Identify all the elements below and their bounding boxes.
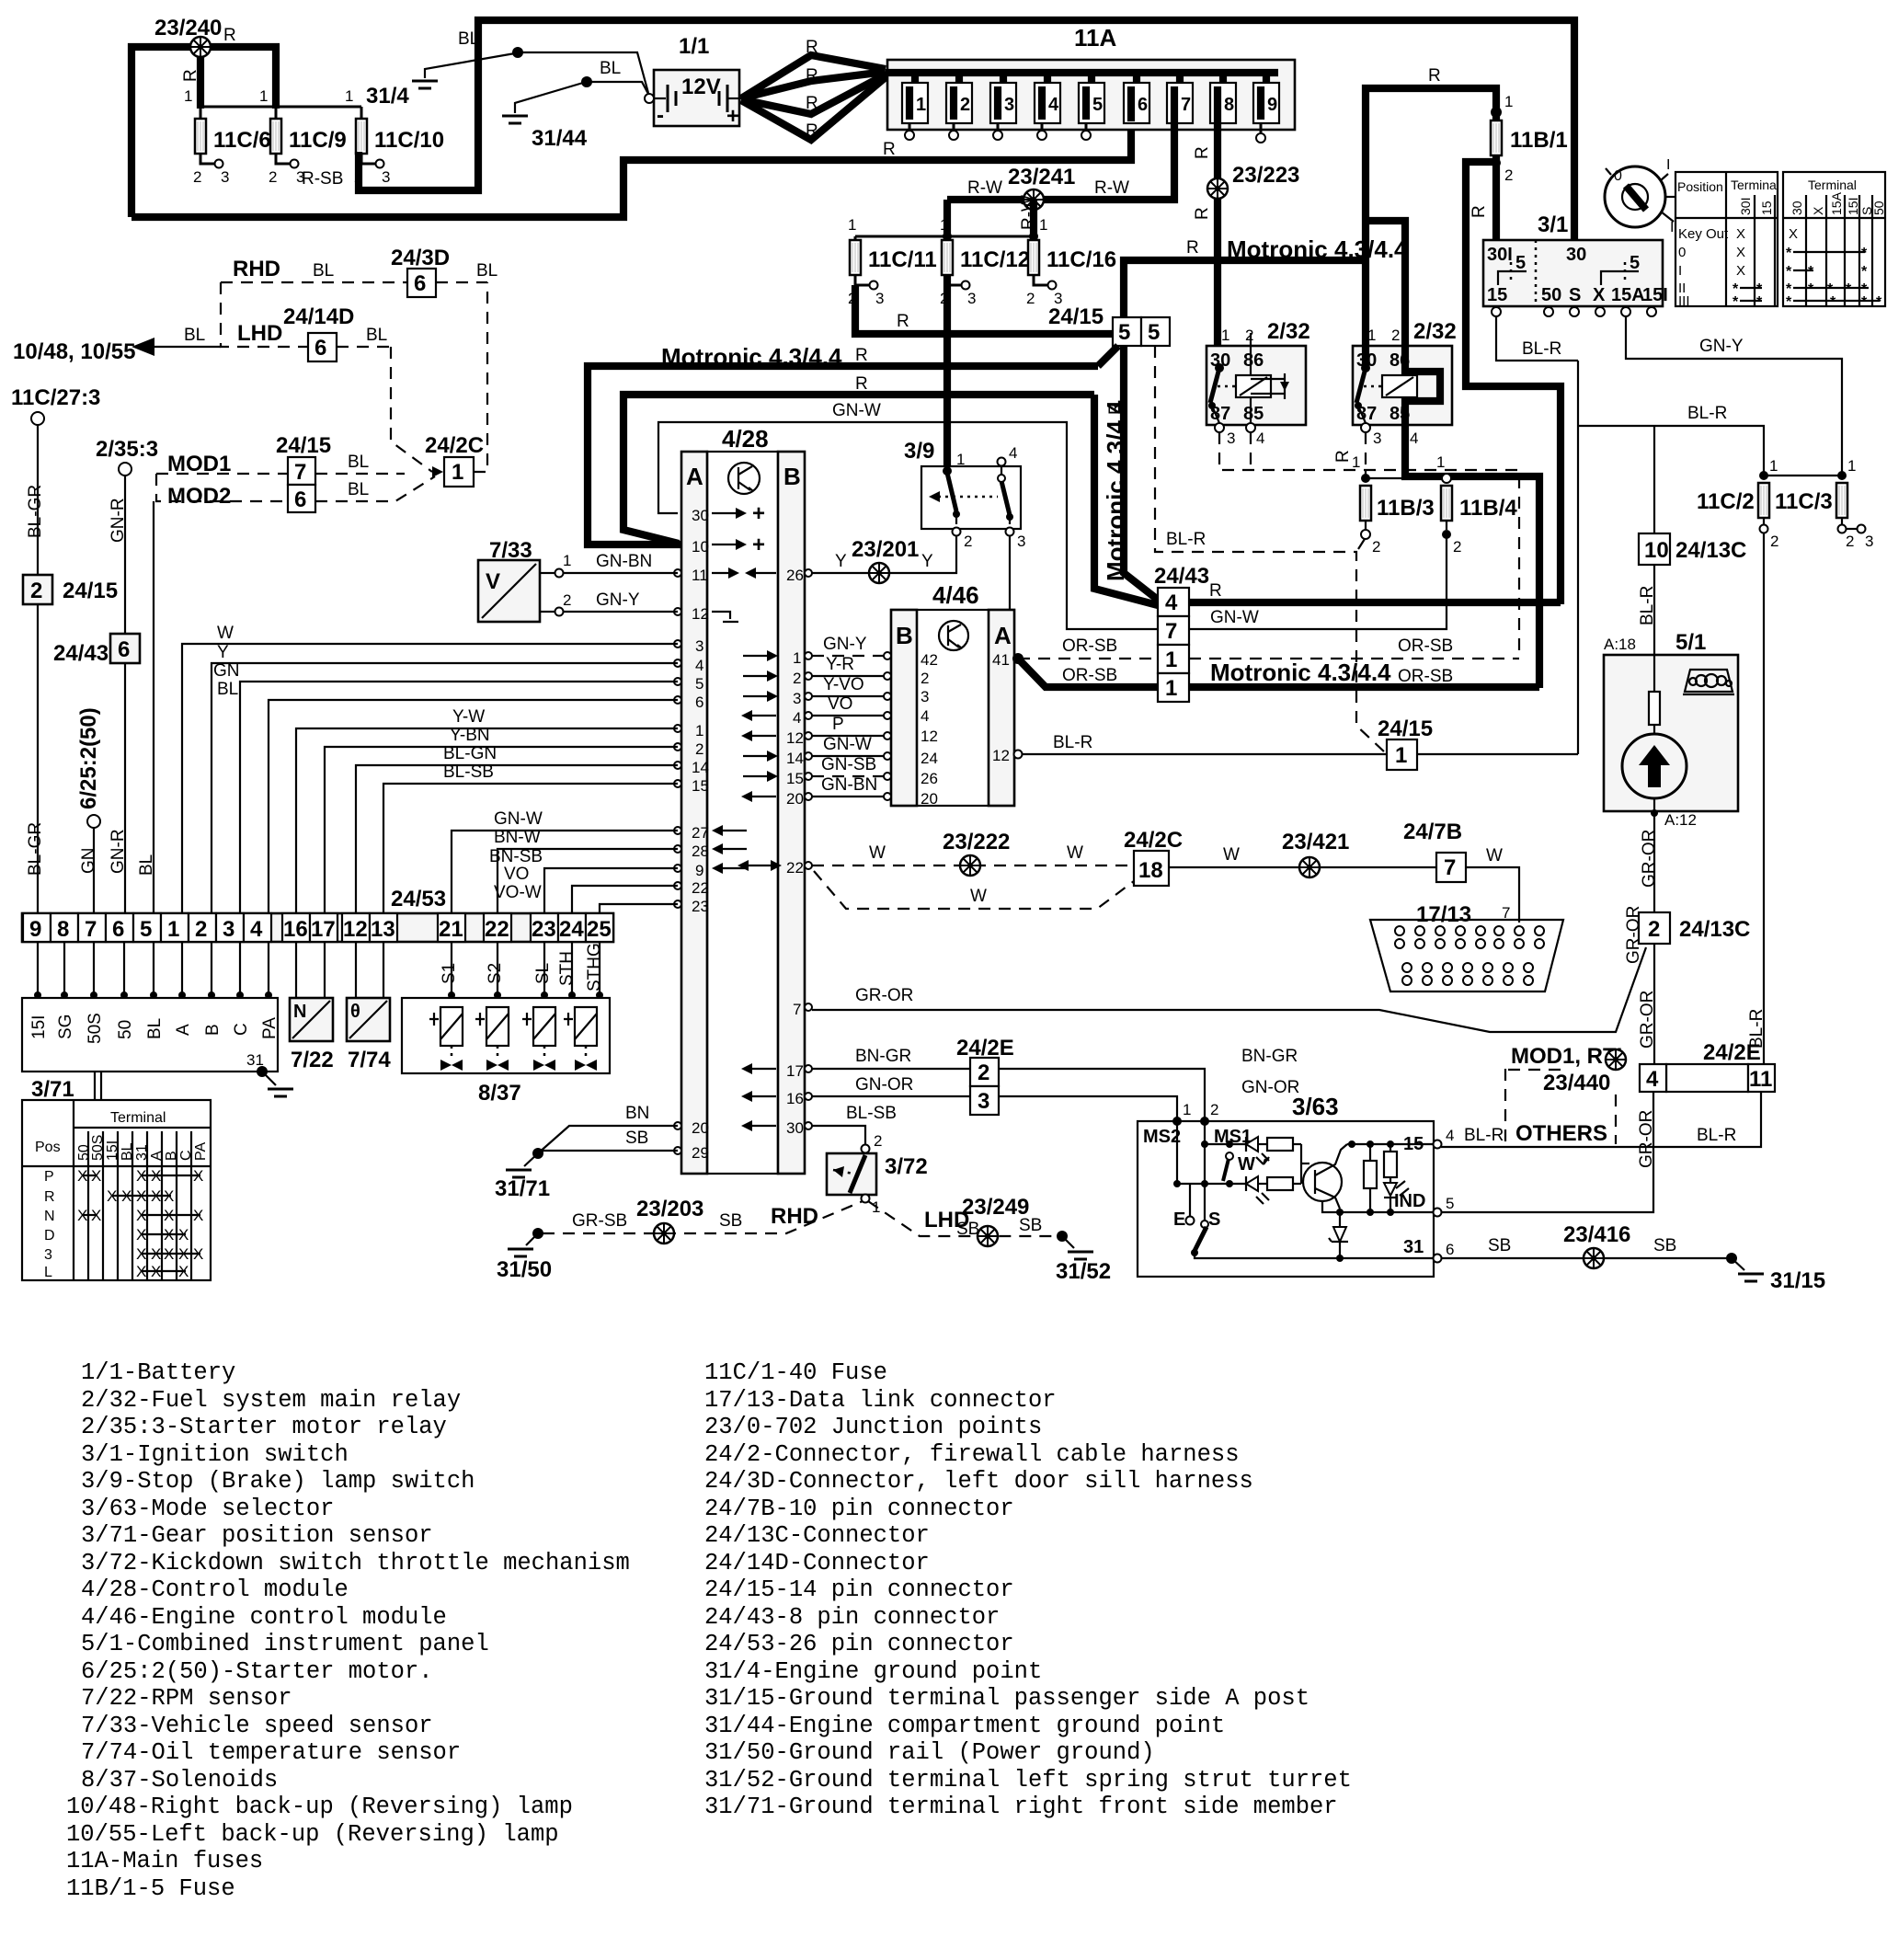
svg-text:15: 15 — [1403, 1134, 1424, 1154]
svg-text:8/37-Solenoids: 8/37-Solenoids — [81, 1767, 278, 1794]
svg-text:Y-BN: Y-BN — [450, 726, 490, 745]
svg-text:5: 5 — [1118, 320, 1130, 345]
svg-text:1: 1 — [848, 216, 856, 234]
svg-text:5: 5 — [1515, 253, 1526, 273]
svg-text:3: 3 — [921, 688, 929, 705]
svg-text:SB: SB — [625, 1129, 648, 1148]
svg-text:30: 30 — [1566, 245, 1586, 265]
svg-text:6: 6 — [1138, 95, 1148, 115]
svg-text:24/43-8 pin connector: 24/43-8 pin connector — [704, 1604, 1000, 1631]
svg-text:PA: PA — [193, 1142, 209, 1161]
svg-text:25: 25 — [587, 917, 612, 942]
svg-text:A: A — [174, 1024, 193, 1036]
svg-text:1: 1 — [1504, 93, 1513, 110]
svg-text:Y: Y — [921, 552, 933, 571]
svg-text:BN-GR: BN-GR — [855, 1047, 911, 1066]
svg-text:1: 1 — [1395, 743, 1407, 768]
svg-text:X: X — [178, 1226, 189, 1244]
svg-text:3: 3 — [1865, 533, 1873, 550]
svg-text:24/13C-Connector: 24/13C-Connector — [704, 1522, 930, 1549]
svg-text:4: 4 — [1256, 430, 1264, 447]
svg-text:3/63-Mode selector: 3/63-Mode selector — [81, 1496, 334, 1522]
svg-text:Y: Y — [835, 552, 847, 571]
svg-text:15I: 15I — [1642, 285, 1668, 305]
svg-text:4/28: 4/28 — [722, 425, 769, 453]
svg-text:3: 3 — [44, 1247, 52, 1263]
svg-text:31/44: 31/44 — [532, 126, 588, 151]
svg-text:GN-Y: GN-Y — [823, 635, 867, 654]
svg-text:5: 5 — [1630, 253, 1640, 273]
svg-text:7/22: 7/22 — [291, 1048, 334, 1072]
svg-text:PA: PA — [260, 1017, 280, 1039]
svg-text:1: 1 — [1039, 216, 1047, 234]
svg-text:11B/1: 11B/1 — [1510, 128, 1568, 153]
svg-text:BL: BL — [348, 480, 369, 499]
svg-text:2/35:3-Starter motor relay: 2/35:3-Starter motor relay — [81, 1414, 447, 1440]
svg-text:17/13-Data link connector: 17/13-Data link connector — [704, 1387, 1057, 1414]
svg-text:11B/1-5 Fuse: 11B/1-5 Fuse — [66, 1875, 235, 1902]
svg-text:0: 0 — [1678, 245, 1686, 260]
svg-text:III: III — [1678, 293, 1690, 309]
svg-text:3/72: 3/72 — [885, 1154, 928, 1179]
svg-text:W: W — [217, 624, 234, 643]
svg-text:VO: VO — [828, 694, 852, 714]
svg-text:14: 14 — [786, 750, 804, 767]
svg-text:23/440: 23/440 — [1543, 1071, 1610, 1095]
svg-text:R: R — [1333, 450, 1353, 463]
svg-text:6/25:2(50)-Starter motor.: 6/25:2(50)-Starter motor. — [81, 1658, 433, 1685]
svg-text:1: 1 — [793, 649, 801, 667]
svg-text:3/9: 3/9 — [904, 439, 934, 464]
svg-text:B: B — [896, 622, 913, 649]
svg-text:1: 1 — [452, 460, 463, 485]
svg-text:24/43: 24/43 — [53, 641, 109, 666]
svg-text:7: 7 — [1181, 95, 1191, 115]
svg-text:7: 7 — [85, 917, 97, 942]
svg-text:1/1: 1/1 — [679, 34, 709, 59]
svg-text:24/15: 24/15 — [1378, 716, 1433, 741]
svg-text:16: 16 — [786, 1090, 804, 1107]
svg-text:S: S — [1208, 1209, 1220, 1230]
svg-text:3: 3 — [223, 917, 234, 942]
svg-text:4: 4 — [1410, 430, 1418, 447]
svg-text:GR-OR: GR-OR — [1640, 830, 1659, 888]
svg-text:7/22-RPM sensor: 7/22-RPM sensor — [81, 1685, 292, 1712]
svg-text:SB: SB — [1653, 1236, 1676, 1255]
svg-text:X: X — [1736, 226, 1745, 242]
svg-text:24/7B: 24/7B — [1403, 820, 1462, 844]
svg-text:*: * — [1861, 264, 1868, 280]
svg-text:OR-SB: OR-SB — [1398, 667, 1453, 686]
svg-text:4/46: 4/46 — [932, 581, 979, 609]
svg-text:2: 2 — [793, 670, 801, 687]
svg-text:15: 15 — [786, 770, 804, 787]
svg-text:2: 2 — [1504, 166, 1513, 184]
svg-text:12: 12 — [921, 728, 938, 745]
svg-text:3/63: 3/63 — [1292, 1093, 1339, 1120]
svg-text:*: * — [1733, 294, 1739, 310]
svg-text:*: * — [1786, 264, 1792, 280]
svg-text:D: D — [44, 1228, 55, 1244]
svg-text:Terminal: Terminal — [1731, 178, 1779, 192]
svg-text:20: 20 — [921, 790, 938, 808]
svg-text:24/14D-Connector: 24/14D-Connector — [704, 1550, 930, 1576]
svg-text:7/74: 7/74 — [348, 1048, 391, 1072]
svg-text:W: W — [970, 887, 987, 906]
svg-text:2: 2 — [921, 670, 929, 687]
svg-text:Motronic 4.3/4.4: Motronic 4.3/4.4 — [1102, 400, 1129, 581]
svg-text:1: 1 — [1183, 1101, 1191, 1118]
svg-text:3: 3 — [1004, 95, 1014, 115]
svg-text:GR-OR: GR-OR — [1624, 906, 1643, 964]
svg-text:Motronic 4.3/4.4: Motronic 4.3/4.4 — [1210, 659, 1391, 686]
svg-text:R: R — [806, 66, 818, 86]
svg-text:9: 9 — [29, 917, 41, 942]
svg-text:11C/2: 11C/2 — [1697, 489, 1755, 514]
svg-text:4: 4 — [793, 709, 801, 727]
svg-text:*: * — [1830, 294, 1836, 310]
svg-text:*: * — [1876, 294, 1882, 310]
svg-text:1: 1 — [1769, 457, 1778, 475]
svg-text:1/1-Battery: 1/1-Battery — [81, 1359, 235, 1386]
svg-text:2: 2 — [978, 1060, 989, 1085]
svg-text:2: 2 — [1372, 538, 1380, 556]
svg-text:5: 5 — [140, 917, 152, 942]
svg-text:+: + — [726, 104, 739, 129]
svg-text:17/13: 17/13 — [1416, 902, 1471, 927]
svg-text:5/1: 5/1 — [1675, 630, 1706, 655]
svg-text:R: R — [1470, 205, 1489, 218]
svg-text:GN-OR: GN-OR — [1241, 1078, 1299, 1097]
svg-text:41: 41 — [992, 651, 1010, 669]
svg-text:E: E — [1173, 1209, 1185, 1230]
svg-text:23/240: 23/240 — [154, 16, 222, 40]
svg-text:GN-BN: GN-BN — [596, 552, 652, 571]
svg-text:23/416: 23/416 — [1563, 1222, 1630, 1247]
svg-text:11C/10: 11C/10 — [374, 128, 444, 153]
svg-text:STHG: STHG — [585, 943, 604, 991]
svg-text:3/71: 3/71 — [31, 1077, 74, 1102]
svg-text:X: X — [1736, 245, 1745, 260]
svg-text:50: 50 — [116, 1020, 135, 1039]
svg-text:R: R — [855, 374, 868, 394]
svg-text:7/74-Oil temperature sensor: 7/74-Oil temperature sensor — [81, 1739, 461, 1766]
svg-text:3: 3 — [1017, 533, 1025, 550]
svg-text:C: C — [232, 1023, 251, 1036]
svg-text:BL-R: BL-R — [1053, 733, 1092, 752]
svg-text:R-W: R-W — [967, 178, 1002, 198]
svg-text:3: 3 — [1373, 430, 1381, 447]
svg-text:10/55-Left back-up (Reversing): 10/55-Left back-up (Reversing) lamp — [66, 1821, 559, 1848]
svg-text:BN: BN — [625, 1104, 649, 1123]
svg-text:5/1-Combined instrument panel: 5/1-Combined instrument panel — [81, 1631, 489, 1657]
svg-text:STH: STH — [557, 951, 577, 986]
svg-text:GN-Y: GN-Y — [1699, 337, 1744, 356]
svg-text:23/201: 23/201 — [852, 537, 919, 562]
svg-text:11C/11: 11C/11 — [868, 247, 937, 272]
svg-text:R-W: R-W — [1094, 178, 1129, 198]
svg-text:3: 3 — [875, 290, 884, 307]
svg-text:X: X — [178, 1263, 189, 1280]
svg-text:X: X — [164, 1226, 174, 1244]
svg-text:R: R — [883, 140, 896, 159]
svg-text:2: 2 — [874, 1132, 882, 1150]
svg-text:3: 3 — [1227, 430, 1235, 447]
svg-text:15A: 15A — [1611, 285, 1645, 305]
svg-text:10: 10 — [692, 538, 709, 556]
svg-text:29: 29 — [692, 1144, 709, 1162]
svg-text:1: 1 — [345, 87, 353, 105]
svg-text:SB: SB — [1019, 1216, 1042, 1235]
svg-text:2: 2 — [269, 168, 277, 186]
svg-text:24/13C: 24/13C — [1679, 917, 1750, 942]
svg-text:R: R — [44, 1189, 55, 1205]
svg-text:22: 22 — [692, 879, 709, 897]
svg-text:BL: BL — [137, 854, 156, 876]
svg-text:12: 12 — [786, 729, 804, 747]
svg-text:R: R — [806, 121, 818, 141]
svg-text:31/52: 31/52 — [1056, 1259, 1111, 1284]
svg-text:20: 20 — [786, 790, 804, 808]
svg-text:0: 0 — [1614, 168, 1622, 184]
svg-text:7: 7 — [1444, 855, 1456, 880]
svg-text:OR-SB: OR-SB — [1062, 666, 1117, 685]
svg-text:8/37: 8/37 — [478, 1081, 521, 1106]
svg-text:VO-W: VO-W — [494, 883, 542, 902]
svg-text:15: 15 — [692, 777, 709, 795]
svg-text:N: N — [44, 1209, 55, 1224]
svg-text:14: 14 — [692, 759, 709, 776]
svg-text:A: A — [994, 622, 1012, 649]
svg-text:X: X — [164, 1245, 174, 1263]
svg-text:2: 2 — [1026, 290, 1035, 307]
svg-text:*: * — [1861, 294, 1868, 310]
svg-text:Motronic 4.3/4.4: Motronic 4.3/4.4 — [1227, 235, 1408, 263]
svg-text:GN-Y: GN-Y — [596, 590, 640, 610]
svg-text:30I: 30I — [1487, 245, 1513, 265]
svg-text:V: V — [486, 569, 500, 594]
svg-text:3/9-Stop (Brake) lamp switch: 3/9-Stop (Brake) lamp switch — [81, 1468, 475, 1495]
svg-text:22: 22 — [786, 859, 804, 877]
svg-text:RHD: RHD — [233, 257, 280, 281]
svg-text:Y-W: Y-W — [452, 707, 485, 727]
svg-text:23/203: 23/203 — [636, 1197, 703, 1221]
svg-text:3: 3 — [978, 1089, 989, 1114]
svg-text:24/15: 24/15 — [1048, 304, 1104, 329]
svg-text:24/2E: 24/2E — [1703, 1040, 1761, 1065]
svg-text:GR-OR: GR-OR — [1638, 991, 1657, 1049]
svg-text:2/35:3: 2/35:3 — [96, 437, 158, 462]
svg-text:Pos: Pos — [35, 1140, 61, 1155]
svg-text:2: 2 — [195, 917, 207, 942]
svg-text:11C/6: 11C/6 — [213, 128, 271, 153]
svg-text:12: 12 — [692, 605, 709, 623]
svg-text:MS2: MS2 — [1143, 1127, 1181, 1147]
svg-text:BL-R: BL-R — [1166, 530, 1206, 549]
svg-text:3: 3 — [695, 637, 703, 655]
svg-text:15: 15 — [1759, 201, 1774, 215]
svg-text:W: W — [869, 843, 886, 863]
svg-text:11C/3: 11C/3 — [1775, 489, 1833, 514]
svg-text:4: 4 — [695, 657, 703, 674]
svg-text:2/32-Fuel system main relay: 2/32-Fuel system main relay — [81, 1387, 461, 1414]
svg-text:4: 4 — [250, 917, 263, 942]
svg-text:24: 24 — [559, 917, 584, 942]
svg-text:4: 4 — [1446, 1127, 1454, 1144]
svg-text:24/15: 24/15 — [276, 433, 331, 458]
svg-text:RHD: RHD — [771, 1204, 818, 1229]
svg-text:4: 4 — [1009, 444, 1017, 462]
svg-text:6: 6 — [112, 917, 124, 942]
svg-text:85: 85 — [1243, 404, 1264, 424]
svg-text:GN-W: GN-W — [823, 735, 872, 754]
svg-text:11: 11 — [692, 567, 708, 584]
svg-text:BL: BL — [217, 680, 238, 699]
svg-text:21: 21 — [439, 917, 463, 942]
svg-text:6: 6 — [294, 487, 306, 512]
svg-text:30: 30 — [786, 1119, 804, 1137]
svg-text:2: 2 — [563, 591, 571, 609]
svg-text:R: R — [181, 69, 200, 82]
svg-text:GR-SB: GR-SB — [572, 1211, 627, 1231]
svg-text:6: 6 — [118, 637, 130, 662]
svg-text:1: 1 — [259, 87, 268, 105]
svg-text:X: X — [151, 1263, 161, 1280]
svg-text:15I: 15I — [29, 1015, 49, 1039]
svg-text:1: 1 — [916, 95, 926, 115]
svg-text:31/71-Ground terminal right fr: 31/71-Ground terminal right front side m… — [704, 1794, 1338, 1820]
svg-text:17: 17 — [786, 1062, 804, 1080]
svg-text:Terminal: Terminal — [1808, 178, 1857, 192]
svg-text:X: X — [136, 1187, 146, 1205]
svg-text:23/421: 23/421 — [1282, 830, 1349, 854]
svg-text:24/2-Connector, firewall cable: 24/2-Connector, firewall cable harness — [704, 1441, 1240, 1468]
svg-text:VO: VO — [504, 865, 529, 884]
svg-text:R: R — [1209, 581, 1222, 601]
svg-text:GN-W: GN-W — [494, 809, 543, 829]
svg-text:*: * — [1861, 246, 1868, 261]
svg-text:31/15-Ground terminal passenge: 31/15-Ground terminal passenger side A p… — [704, 1685, 1309, 1712]
svg-text:BL-R: BL-R — [1464, 1126, 1504, 1145]
svg-text:BL: BL — [366, 326, 387, 345]
svg-text:GN: GN — [213, 661, 240, 681]
svg-text:24/53-26 pin connector: 24/53-26 pin connector — [704, 1631, 1014, 1657]
svg-text:BN-GR: BN-GR — [1241, 1047, 1298, 1066]
svg-text:4/46-Engine control module: 4/46-Engine control module — [81, 1604, 447, 1631]
svg-text:1: 1 — [1165, 676, 1177, 701]
svg-text:8: 8 — [1224, 95, 1234, 115]
svg-text:24/7B-10 pin connector: 24/7B-10 pin connector — [704, 1496, 1014, 1522]
svg-text:MOD2: MOD2 — [167, 484, 231, 509]
svg-text:24/14D: 24/14D — [283, 304, 354, 329]
svg-text:15I: 15I — [1846, 198, 1860, 215]
svg-text:1: 1 — [563, 552, 571, 569]
svg-text:*: * — [1846, 281, 1852, 297]
svg-text:SL: SL — [533, 963, 553, 984]
svg-text:86: 86 — [1243, 350, 1264, 371]
svg-text:X: X — [1593, 285, 1606, 305]
svg-text:16: 16 — [283, 917, 308, 942]
svg-text:W: W — [1223, 845, 1240, 865]
svg-text:31/44-Engine compartment groun: 31/44-Engine compartment ground point — [704, 1713, 1225, 1739]
svg-text:Y-R: Y-R — [826, 655, 854, 674]
svg-text:BL-R: BL-R — [1697, 1126, 1736, 1145]
svg-text:31/71: 31/71 — [495, 1176, 550, 1201]
svg-text:24/15-14 pin connector: 24/15-14 pin connector — [704, 1576, 1014, 1603]
svg-text:6: 6 — [695, 693, 703, 711]
svg-text:Terminal: Terminal — [110, 1110, 166, 1126]
svg-text:4/28-Control module: 4/28-Control module — [81, 1576, 349, 1603]
svg-text:23/0-702 Junction points: 23/0-702 Junction points — [704, 1414, 1042, 1440]
svg-text:26: 26 — [921, 770, 938, 787]
svg-text:10/48-Right back-up (Reversing: 10/48-Right back-up (Reversing) lamp — [66, 1794, 573, 1820]
svg-text:11: 11 — [1749, 1067, 1772, 1092]
svg-text:BL: BL — [313, 261, 334, 281]
svg-text:GN-SB: GN-SB — [821, 755, 876, 774]
svg-text:2: 2 — [30, 579, 42, 603]
svg-text:5: 5 — [695, 675, 703, 693]
svg-text:11B/4: 11B/4 — [1459, 496, 1517, 521]
svg-text:12: 12 — [343, 917, 368, 942]
svg-text:IND: IND — [1394, 1191, 1425, 1211]
svg-text:22: 22 — [485, 917, 509, 942]
svg-text:BL-R: BL-R — [1687, 404, 1727, 423]
svg-text:24/2C: 24/2C — [1124, 828, 1183, 853]
svg-text:31/4-Engine ground point: 31/4-Engine ground point — [704, 1658, 1042, 1685]
svg-text:7: 7 — [793, 1001, 801, 1018]
svg-text:5: 5 — [1092, 95, 1103, 115]
svg-text:X: X — [164, 1207, 174, 1224]
svg-text:1: 1 — [940, 216, 948, 234]
svg-text:+: + — [752, 501, 765, 526]
svg-text:BL-R: BL-R — [1638, 586, 1657, 625]
svg-text:GN-R: GN-R — [109, 829, 128, 874]
svg-text:12V: 12V — [681, 75, 721, 99]
svg-text:24/15: 24/15 — [63, 579, 118, 603]
svg-text:3: 3 — [793, 690, 801, 707]
svg-text:9: 9 — [695, 862, 703, 879]
svg-text:2: 2 — [1453, 538, 1461, 556]
svg-text:BN-SB: BN-SB — [489, 847, 543, 866]
svg-text:50S: 50S — [86, 1013, 105, 1044]
svg-text:24/53: 24/53 — [391, 887, 446, 911]
svg-text:R: R — [806, 94, 818, 113]
svg-text:X: X — [1789, 226, 1798, 242]
svg-text:20: 20 — [692, 1119, 709, 1137]
svg-text:W: W — [1067, 843, 1083, 863]
svg-text:6: 6 — [314, 336, 326, 361]
svg-text:GN-W: GN-W — [1210, 608, 1259, 627]
svg-text:5: 5 — [1148, 320, 1160, 345]
svg-text:2: 2 — [695, 740, 703, 758]
svg-text:7: 7 — [294, 460, 306, 485]
svg-text:GN-W: GN-W — [832, 401, 881, 420]
svg-text:23: 23 — [692, 898, 709, 915]
svg-text:1: 1 — [1221, 327, 1229, 344]
svg-text:15A: 15A — [1829, 191, 1844, 215]
svg-text:I: I — [1678, 263, 1682, 279]
svg-text:P: P — [44, 1169, 54, 1185]
svg-text:11C/12: 11C/12 — [960, 247, 1030, 272]
svg-text:Key Out: Key Out — [1678, 226, 1729, 242]
svg-text:*: * — [1756, 294, 1763, 310]
svg-text:R: R — [1193, 146, 1212, 159]
svg-text:S: S — [1569, 285, 1581, 305]
svg-text:GN-BN: GN-BN — [821, 775, 877, 795]
svg-text:BL-GR: BL-GR — [26, 485, 45, 538]
svg-text:4: 4 — [1646, 1067, 1659, 1092]
svg-text:BL: BL — [476, 261, 497, 281]
